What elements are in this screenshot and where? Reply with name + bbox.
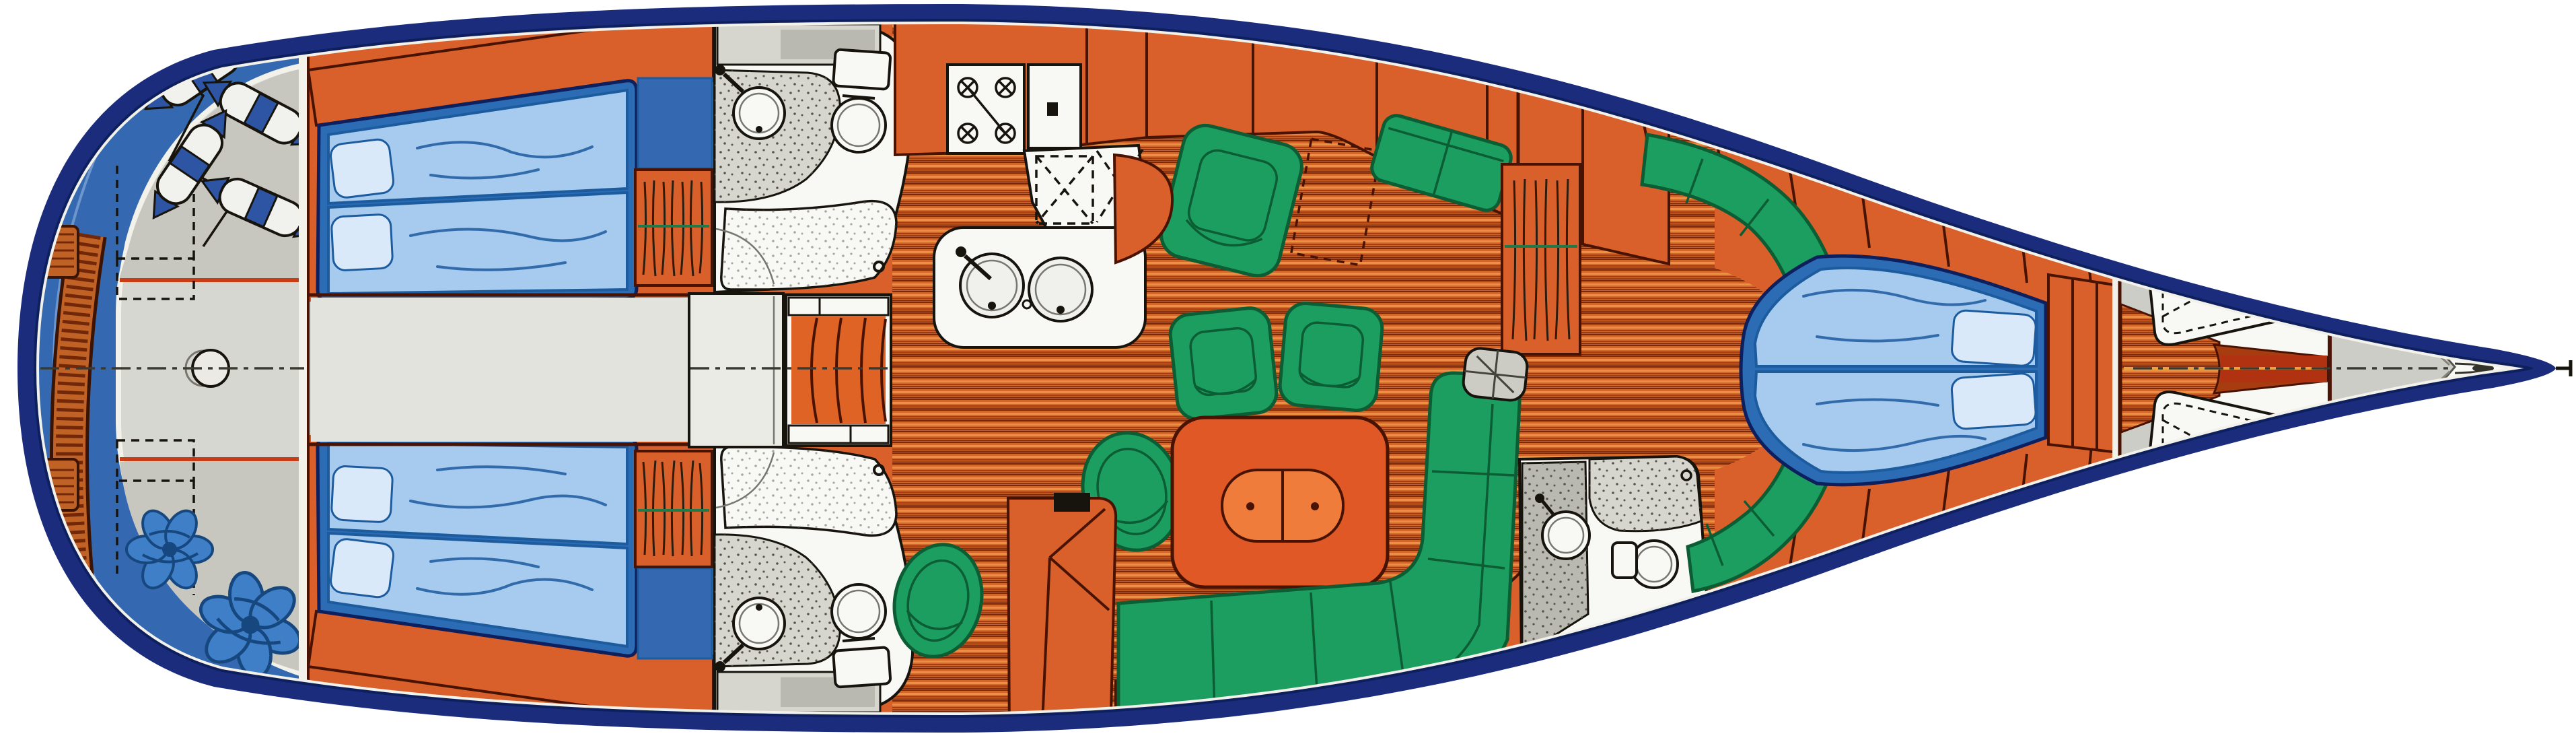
yacht-floor-plan-stage <box>0 0 2576 744</box>
aft-head-port <box>715 20 913 292</box>
step-rail <box>789 298 888 315</box>
yacht-floor-plan <box>0 0 2576 744</box>
engine-box <box>689 294 783 447</box>
aft-head-starboard <box>715 444 913 716</box>
leaf-hinge <box>1246 502 1254 510</box>
dining-chair <box>1168 306 1278 421</box>
step-rail <box>789 426 888 443</box>
companionway-corridor <box>311 298 688 442</box>
forward-head <box>1519 456 1707 729</box>
leaf-hinge <box>1311 502 1319 510</box>
companionway-steps <box>786 295 891 446</box>
dining-table <box>1172 417 1388 587</box>
stem-fitting <box>2556 360 2572 376</box>
dining-chair <box>1279 302 1384 412</box>
port-wardrobe-forward <box>1502 164 1580 354</box>
orange-seat-unit <box>1008 493 1116 739</box>
door-leaf <box>1616 638 1684 671</box>
headboard-lockers <box>2048 275 2118 452</box>
pillow <box>1951 373 2036 430</box>
v-berth <box>1741 256 2046 485</box>
companionway-threshold <box>1054 493 1090 512</box>
pillow <box>1951 310 2036 366</box>
mast-step <box>1462 347 1528 401</box>
